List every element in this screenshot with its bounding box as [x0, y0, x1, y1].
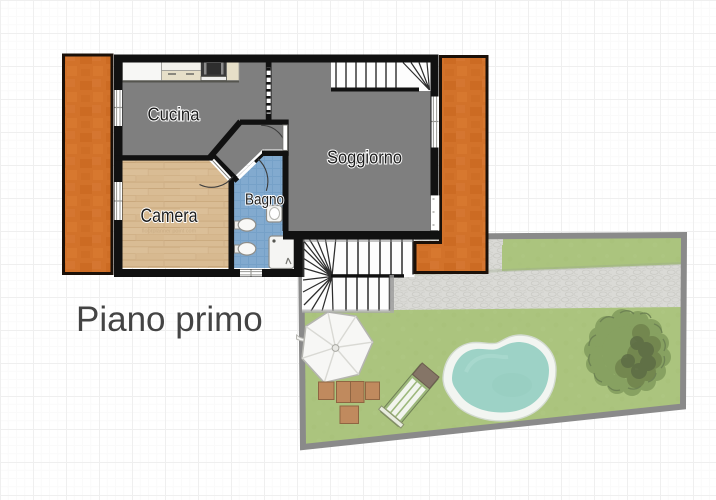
svg-text:Piano primo: Piano primo: [76, 300, 263, 339]
svg-text:Bagno: Bagno: [245, 192, 284, 209]
svg-text:Camera: Camera: [141, 205, 198, 227]
svg-text:floorplanner point com: floorplanner point com: [142, 229, 197, 235]
svg-text:Soggiorno: Soggiorno: [327, 148, 402, 168]
svg-text:Cucina: Cucina: [148, 105, 201, 125]
